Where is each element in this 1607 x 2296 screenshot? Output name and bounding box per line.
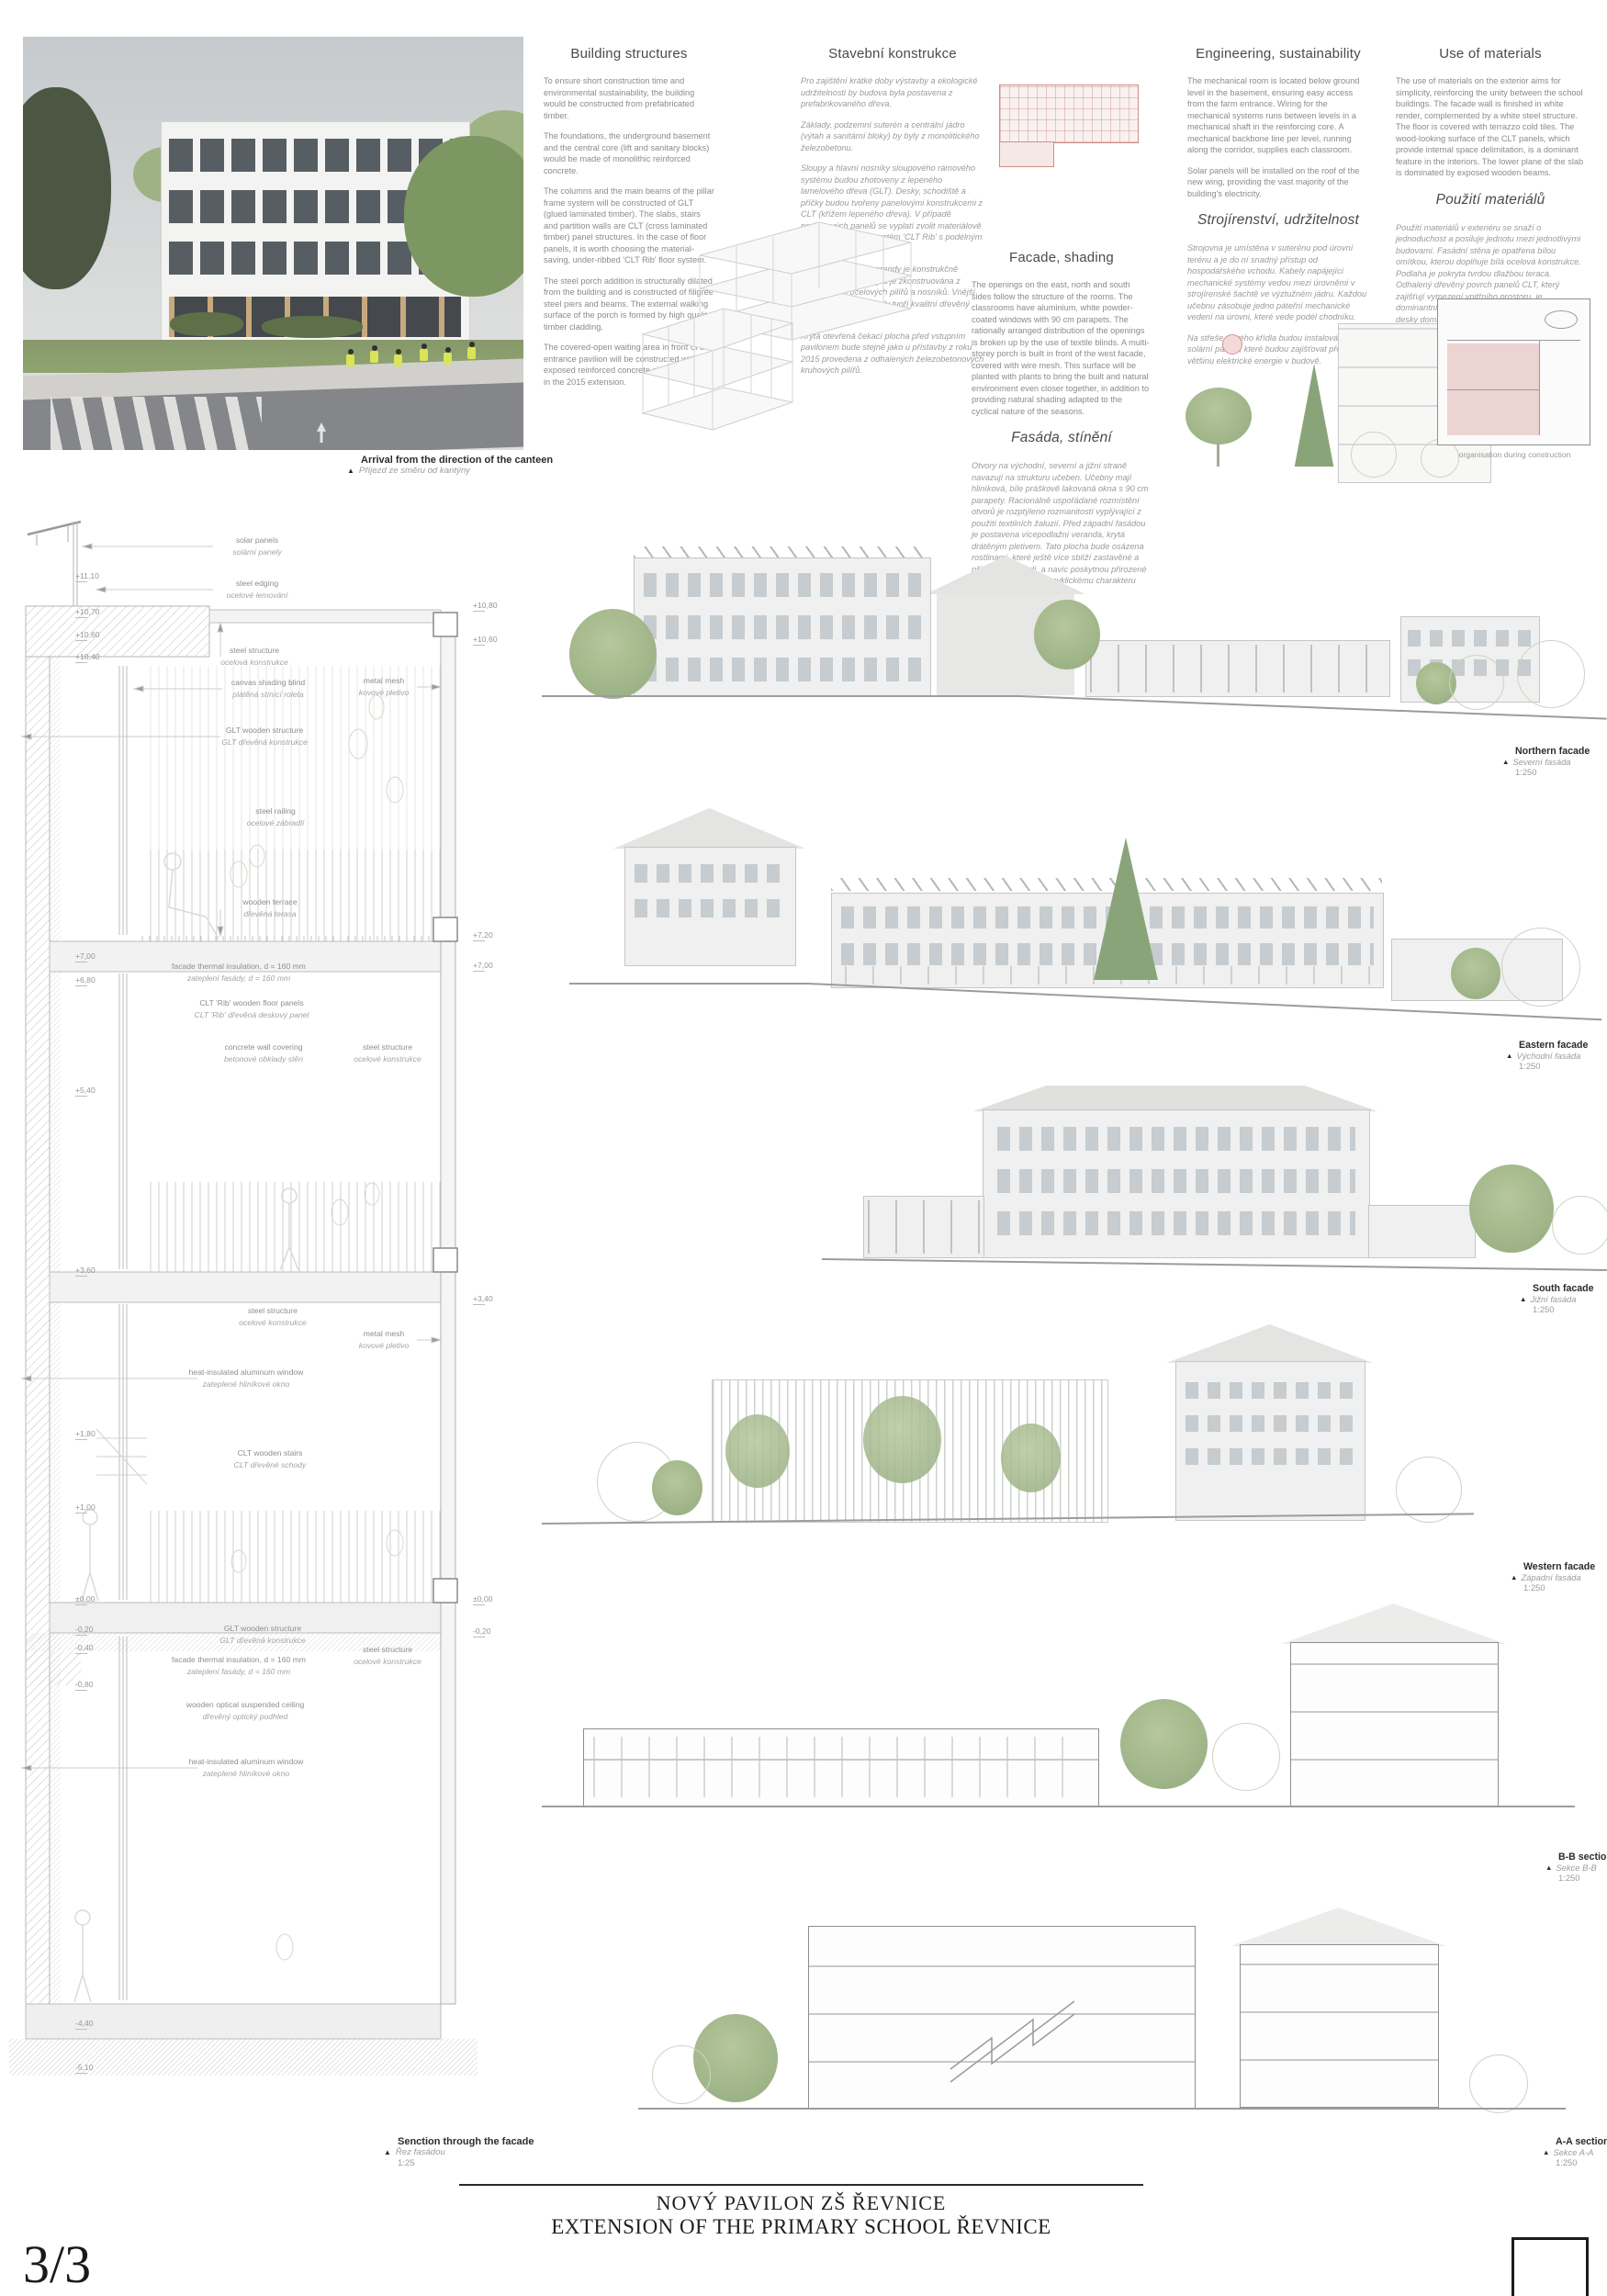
section-label: GLT wooden structure GLT dřevěná konstru…: [221, 725, 307, 748]
section-label-cz: kovové pletivo: [359, 1340, 409, 1352]
section-label-cz: GLT dřevěná konstrukce: [219, 1635, 305, 1647]
photo-pedestrian: [370, 351, 378, 363]
section-label-en: wooden optical suspended ceiling: [186, 1700, 305, 1709]
section-label-en: GLT wooden structure: [224, 1624, 301, 1633]
elevation-mark: +1,00: [75, 1503, 96, 1514]
elevation-scale: 1:250: [1533, 1304, 1594, 1314]
board-title-en: EXTENSION OF THE PRIMARY SCHOOL ŘEVNICE: [459, 2215, 1143, 2239]
section-label: steel structure ocelové konstrukce: [354, 1644, 421, 1668]
photo-crosswalk: [51, 397, 262, 450]
stair-zigzag: [941, 1979, 1079, 2089]
section-label-en: facade thermal insulation, d = 160 mm: [172, 1655, 306, 1664]
section-label: metal mesh kovové pletivo: [359, 1328, 409, 1352]
section-label-cz: ocelové konstrukce: [354, 1053, 421, 1065]
elevation-name-cz: Severní fasáda: [1512, 757, 1570, 767]
elevation-name-en: South facade: [1533, 1283, 1594, 1294]
column-materials: Use of materials The use of materials on…: [1396, 46, 1585, 334]
photo-caption-en: Arrival from the direction of the cantee…: [361, 455, 553, 466]
elevation-name-cz: Východní fasáda: [1516, 1051, 1580, 1061]
section-label-cz: ocelové zábradlí: [247, 817, 305, 829]
section-label-cz: ocelové lemování: [227, 590, 288, 602]
photo-pedestrian: [444, 353, 452, 365]
section-label-en: heat-insulated aluminum window: [189, 1367, 304, 1377]
section-label-cz: zateplené hliníkové okno: [189, 1768, 304, 1780]
section-label-cz: kovové pletivo: [359, 687, 409, 699]
northern-facade-drawing: [542, 501, 1607, 748]
elevation-name-en: B-B section: [1558, 1851, 1607, 1863]
section-label-en: metal mesh: [364, 1329, 404, 1338]
section-label-en: wooden terrace: [242, 897, 297, 906]
sheet-number: 3/3: [23, 2234, 91, 2295]
heading-stavebni-konstrukce: Stavební konstrukce: [801, 46, 984, 62]
structural-axonometry-diagram-2: [632, 303, 802, 441]
heading-fasada-stineni: Fasáda, stínění: [972, 430, 1152, 446]
elevation-mark: ±0,00: [75, 1594, 95, 1605]
heading-strojirenstvi: Strojírenství, udržitelnost: [1187, 212, 1369, 229]
section-label: facade thermal insulation, d = 160 mm za…: [172, 961, 306, 985]
caption-triangle-icon: ▲: [1506, 1051, 1512, 1061]
caption-triangle-icon: ▲: [1511, 1572, 1517, 1582]
elevation-mark: -5,10: [75, 2063, 94, 2074]
section-label: CLT wooden stairs CLT dřevěné schody: [234, 1447, 307, 1471]
section-label-cz: ocelové konstrukce: [354, 1656, 421, 1668]
heading-building-structures: Building structures: [544, 46, 714, 62]
presentation-board: Arrival from the direction of the cantee…: [0, 0, 1607, 2296]
section-label-en: steel edging: [236, 579, 278, 588]
section-label-cz: dřevěný optický podhled: [186, 1711, 305, 1723]
section-label: steel structure ocelové konstrukce: [354, 1041, 421, 1065]
section-label: steel structure ocelové konstrukce: [239, 1305, 307, 1329]
caption-triangle-icon: ▲: [1545, 1863, 1552, 1873]
caption-triangle-icon: ▲: [1543, 2147, 1549, 2157]
paragraph: To ensure short construction time and en…: [544, 75, 714, 121]
elevation-caption: Western facade ▲ Západní fasáda 1:250: [1511, 1561, 1595, 1593]
bb-section-drawing: [542, 1589, 1575, 1855]
stamp-box: [1511, 2237, 1589, 2296]
board-title: NOVÝ PAVILON ZŠ ŘEVNICE EXTENSION OF THE…: [459, 2191, 1143, 2239]
elevation-mark: +7,00: [473, 961, 493, 972]
elevation-mark: -0,40: [75, 1643, 94, 1654]
photo-bush: [170, 312, 243, 336]
elevation-mark: +10,60: [75, 630, 100, 641]
elevation-caption: A-A section ▲ Sekce A-A 1:250: [1543, 2136, 1607, 2167]
tree-trunk: [1217, 443, 1219, 467]
section-label-en: facade thermal insulation, d = 160 mm: [172, 962, 306, 971]
elevation-scale: 1:250: [1523, 1582, 1595, 1593]
facade-section-drawing: solar panels solární panely steel edging…: [9, 514, 514, 2167]
section-label: facade thermal insulation, d = 160 mm za…: [172, 1654, 306, 1678]
elevation-mark: -4,40: [75, 2019, 94, 2030]
hero-photo: [23, 37, 523, 450]
elevation-scale: 1:250: [1558, 1873, 1607, 1883]
elevation-mark: +1,80: [75, 1429, 96, 1440]
photo-bush: [262, 316, 363, 338]
elevation-mark: -0,20: [75, 1625, 94, 1636]
elevation-name-en: Western facade: [1523, 1561, 1595, 1572]
section-label: metal mesh kovové pletivo: [359, 675, 409, 699]
elevation-scale: 1:250: [1519, 1061, 1588, 1071]
section-label-cz: betonové obklady stěn: [224, 1053, 303, 1065]
photo-pedestrian: [346, 355, 354, 366]
elevation-mark: -0,80: [75, 1680, 94, 1691]
elevation-mark: +7,20: [473, 930, 493, 941]
mini-elevation-annex: [999, 141, 1054, 167]
conifer-icon: [1288, 364, 1340, 467]
south-facade-drawing: [822, 1056, 1607, 1295]
western-facade-drawing: [542, 1304, 1474, 1575]
elevation-mark: +5,40: [75, 1086, 96, 1097]
elevation-caption: Northern facade ▲ Severní fasáda 1:250: [1502, 746, 1590, 777]
elevation-mark: +10,40: [75, 652, 100, 663]
paragraph: The foundations, the underground basemen…: [544, 130, 714, 176]
plan-pool-shape: [1545, 310, 1578, 329]
elevation-scale: 1:250: [1556, 2157, 1607, 2167]
section-caption-cz: Řez fasádou: [396, 2147, 445, 2157]
construction-plan-caption: organisation during construction: [1425, 450, 1604, 459]
photo-pedestrian: [467, 347, 476, 359]
paragraph: Pro zajištění krátké doby výstavby a eko…: [801, 75, 984, 110]
board-title-cz: NOVÝ PAVILON ZŠ ŘEVNICE: [459, 2191, 1143, 2215]
elevation-caption: Eastern facade ▲ Východní fasáda 1:250: [1506, 1040, 1588, 1071]
section-label: solar panels solární panely: [232, 535, 282, 558]
heading-facade-shading: Facade, shading: [972, 250, 1152, 265]
elevation-mark: +3,40: [473, 1294, 493, 1305]
elevation-mark: +10,70: [75, 607, 100, 618]
facade-section-linework: [9, 514, 514, 2167]
paragraph: The openings on the east, north and sout…: [972, 279, 1152, 417]
section-label-cz: ocelová konstrukce: [220, 657, 288, 669]
eastern-facade-drawing: [569, 790, 1602, 1042]
section-label: heat-insulated aluminum window zateplené…: [189, 1756, 304, 1780]
section-label-en: concrete wall covering: [224, 1042, 302, 1052]
paragraph: Solar panels will be installed on the ro…: [1187, 165, 1369, 200]
section-label-cz: CLT dřevěné schody: [234, 1459, 307, 1471]
plan-wall: [1447, 340, 1580, 341]
section-label: wooden optical suspended ceiling dřevěný…: [186, 1699, 305, 1723]
elevation-mark: +7,00: [75, 951, 96, 962]
section-label-en: CLT wooden stairs: [238, 1448, 303, 1458]
photo-caption-cz: Příjezd ze směru od kantýny: [359, 466, 470, 476]
section-label: steel structure ocelová konstrukce: [220, 645, 288, 669]
aa-section-drawing: [638, 1887, 1566, 2154]
section-label-cz: zateplení fasády, d = 160 mm: [172, 1666, 306, 1678]
section-label-cz: ocelové konstrukce: [239, 1317, 307, 1329]
elevation-name-cz: Jižní fasáda: [1530, 1294, 1576, 1304]
sun-icon: [1222, 334, 1242, 355]
section-label-cz: GLT dřevěná konstrukce: [221, 737, 307, 748]
body-use-of-materials: The use of materials on the exterior aim…: [1396, 75, 1585, 179]
section-label: wooden terrace dřevěná terasa: [242, 896, 297, 920]
body-facade-shading: The openings on the east, north and sout…: [972, 279, 1152, 417]
section-label-en: steel structure: [230, 646, 279, 655]
elevation-mark: -0,20: [473, 1626, 491, 1638]
elevation-name-en: Eastern facade: [1519, 1040, 1588, 1051]
heading-engineering: Engineering, sustainability: [1187, 46, 1369, 62]
paragraph: Základy, podzemní suterén a centrální já…: [801, 119, 984, 154]
plan-wall: [1447, 389, 1539, 390]
section-label-en: solar panels: [236, 535, 278, 545]
section-label-en: GLT wooden structure: [226, 726, 303, 735]
photo-caption: Arrival from the direction of the cantee…: [347, 455, 553, 477]
section-label-cz: zateplené hliníkové okno: [189, 1379, 304, 1390]
caption-triangle-icon: ▲: [1520, 1294, 1526, 1304]
section-label-cz: solární panely: [232, 546, 282, 558]
section-label-cz: plátěná stínící roleta: [231, 689, 305, 701]
section-label: steel edging ocelové lemování: [227, 578, 288, 602]
elevation-mark: ±0,00: [473, 1594, 492, 1605]
paragraph: The use of materials on the exterior aim…: [1396, 75, 1585, 179]
section-label: concrete wall covering betonové obklady …: [224, 1041, 303, 1065]
elevation-name-en: A-A section: [1556, 2136, 1607, 2147]
elevation-mark: +3,60: [75, 1266, 96, 1277]
photo-pedestrian: [394, 355, 402, 366]
section-label: steel railing ocelové zábradlí: [247, 805, 305, 829]
section-label-en: metal mesh: [364, 676, 404, 685]
section-label-en: steel railing: [255, 806, 295, 816]
section-caption-scale: 1:25: [398, 2158, 534, 2168]
photo-tree: [404, 136, 523, 297]
title-rule: [459, 2184, 1143, 2186]
section-label-cz: zateplení fasády, d = 160 mm: [172, 973, 306, 985]
section-label-en: CLT 'Rib' wooden floor panels: [199, 998, 303, 1007]
heading-use-of-materials: Use of materials: [1396, 46, 1585, 62]
elevation-name-cz: Západní fasáda: [1521, 1572, 1580, 1582]
tree-icon: [1186, 388, 1252, 445]
caption-triangle-icon: ▲: [347, 466, 354, 477]
plan-wall: [1539, 340, 1540, 435]
section-label-en: steel structure: [363, 1042, 412, 1052]
pale-tree-icon: [1351, 432, 1397, 478]
elevation-mark: +11,10: [75, 571, 99, 582]
section-label: canvas shading blind plátěná stínící rol…: [231, 677, 305, 701]
heading-pouziti-materialu: Použití materiálů: [1396, 192, 1585, 208]
elevation-name-cz: Sekce A-A: [1553, 2147, 1593, 2157]
section-label-en: heat-insulated aluminum window: [189, 1757, 304, 1766]
elevation-scale: 1:250: [1515, 767, 1590, 777]
elevation-name-cz: Sekce B-B: [1556, 1863, 1596, 1873]
caption-triangle-icon: ▲: [384, 2147, 391, 2158]
body-engineering: The mechanical room is located below gro…: [1187, 75, 1369, 199]
section-caption: Senction through the facade ▲ Řez fasádo…: [384, 2136, 534, 2168]
elevation-mark: +10,60: [473, 635, 498, 646]
section-label: GLT wooden structure GLT dřevěná konstru…: [219, 1623, 305, 1647]
section-caption-en: Senction through the facade: [398, 2136, 534, 2147]
section-label-en: steel structure: [248, 1306, 298, 1315]
elevation-name-en: Northern facade: [1515, 746, 1590, 757]
photo-pedestrian: [420, 349, 428, 361]
construction-organisation-plan: [1437, 298, 1590, 445]
section-label-en: canvas shading blind: [231, 678, 305, 687]
section-label-en: steel structure: [363, 1645, 412, 1654]
section-label: CLT 'Rib' wooden floor panels CLT 'Rib' …: [195, 997, 309, 1021]
elevation-mark: +6,80: [75, 975, 96, 986]
paragraph: The mechanical room is located below gro…: [1187, 75, 1369, 156]
caption-triangle-icon: ▲: [1502, 757, 1509, 767]
elevation-caption: South facade ▲ Jižní fasáda 1:250: [1520, 1283, 1594, 1314]
section-label-cz: CLT 'Rib' dřevěná deskový panel: [195, 1009, 309, 1021]
elevation-caption: B-B section ▲ Sekce B-B 1:250: [1545, 1851, 1607, 1883]
elevation-mark: +10,80: [473, 601, 498, 612]
section-label-cz: dřevěná terasa: [242, 908, 297, 920]
section-label: heat-insulated aluminum window zateplené…: [189, 1367, 304, 1390]
mini-elevation-diagram: [999, 84, 1139, 143]
